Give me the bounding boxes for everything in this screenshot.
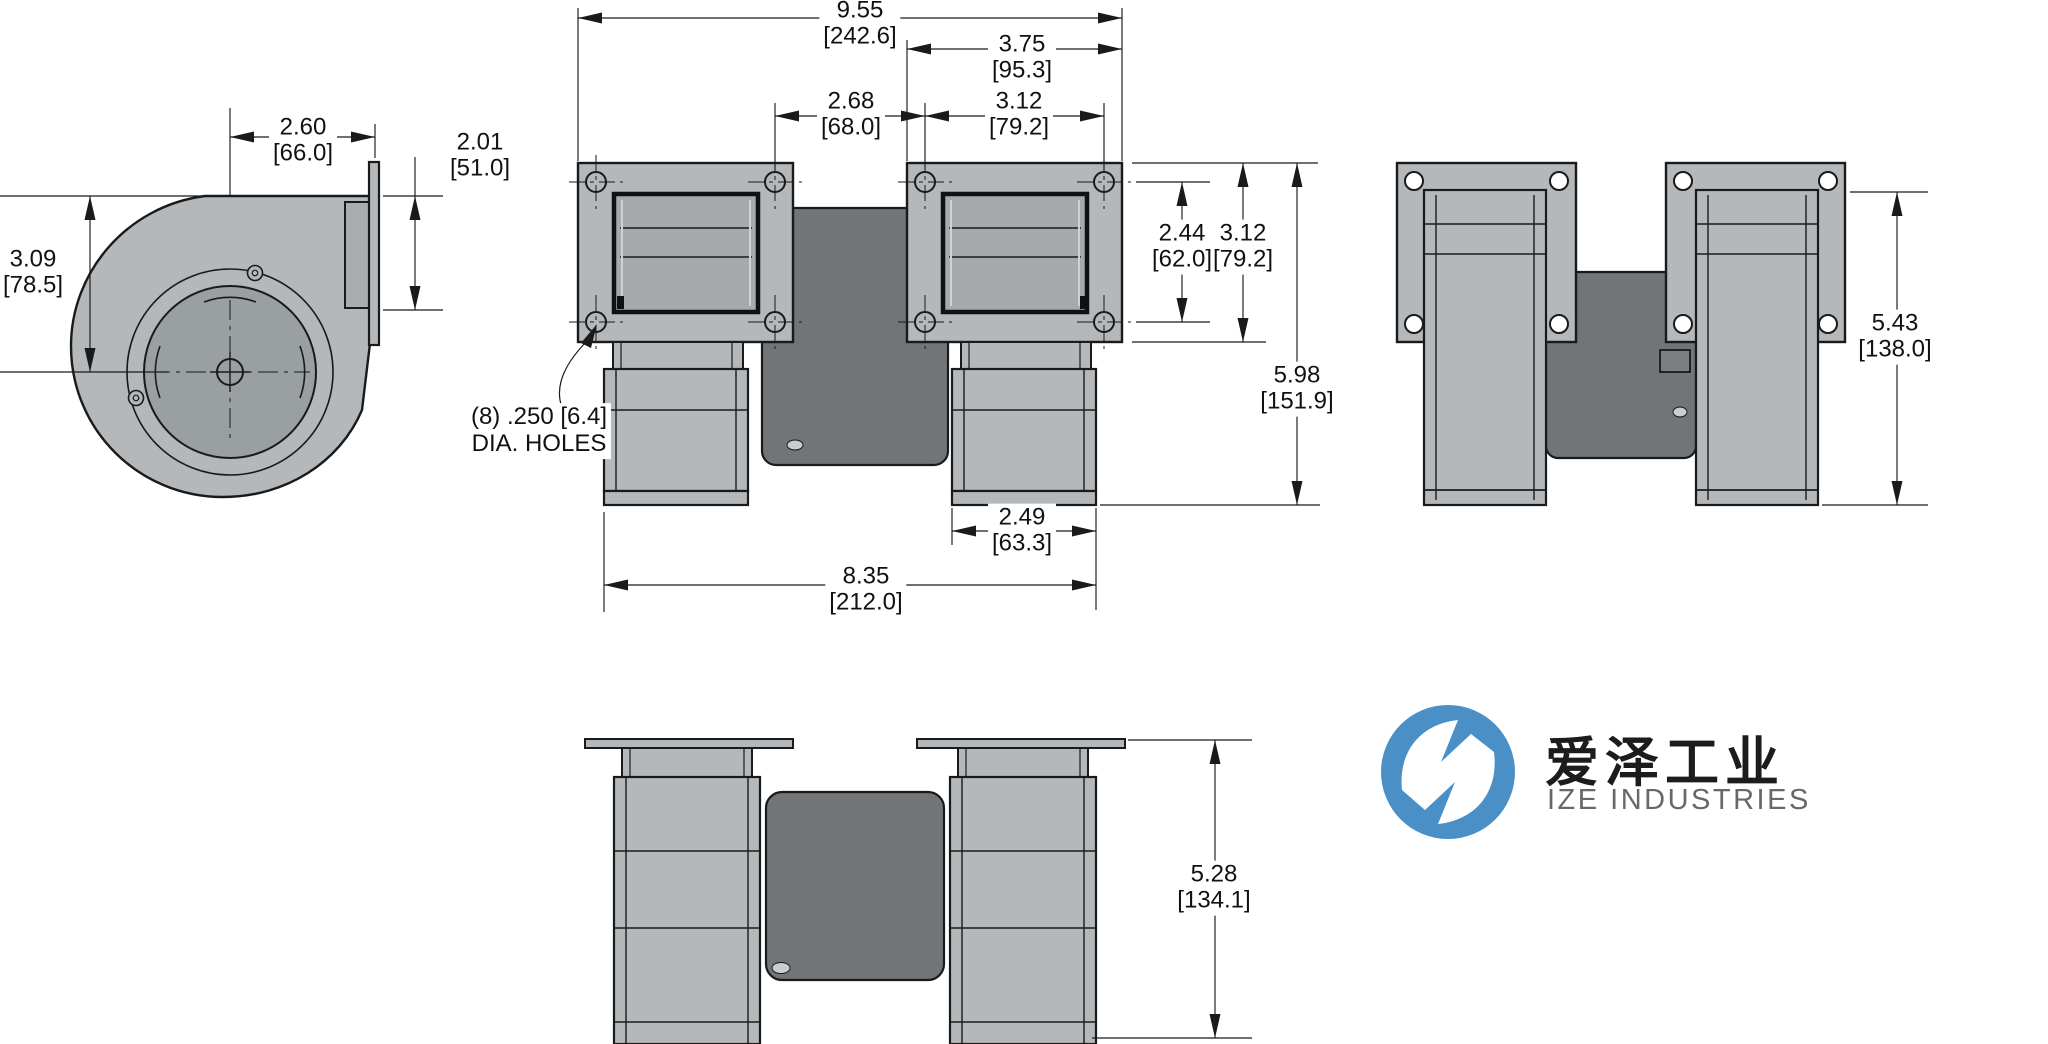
outlet-duct-edge bbox=[345, 202, 371, 308]
dim-hole-span-horizontal: 3.12[79.2] bbox=[985, 88, 1053, 143]
right-housing-column bbox=[952, 342, 1096, 505]
left-housing-column bbox=[604, 342, 748, 505]
outlet-flange-edge bbox=[369, 162, 379, 345]
dim-hole-span-vertical: 2.44[62.0] bbox=[1150, 220, 1214, 275]
motor-boss bbox=[1673, 407, 1687, 417]
ring-screw bbox=[129, 391, 144, 406]
right-outlet-opening bbox=[943, 194, 1087, 312]
motor-boss bbox=[772, 963, 790, 974]
left-outlet-opening bbox=[614, 194, 758, 312]
blower-dimension-drawing: 2.60[66.0] 2.01[51.0] 3.09[78.5] 9.55[24… bbox=[0, 0, 2048, 1044]
dim-scroll-width: 2.60[66.0] bbox=[269, 114, 337, 169]
right-housing-column bbox=[950, 748, 1096, 1044]
dim-hole-gap: 2.68[68.0] bbox=[817, 88, 885, 143]
dim-bottom-depth: 5.28[134.1] bbox=[1173, 861, 1254, 916]
right-flange-edge bbox=[917, 739, 1125, 748]
view-blower-side bbox=[71, 162, 379, 497]
company-logo: 爱泽工业 IZE INDUSTRIES bbox=[1380, 704, 1940, 854]
motor-boss bbox=[787, 440, 803, 450]
dim-flange-width: 3.75[95.3] bbox=[988, 31, 1056, 86]
view-bottom-dual bbox=[585, 739, 1125, 1044]
logo-mark-icon bbox=[1380, 704, 1516, 840]
left-housing-body bbox=[1424, 190, 1546, 505]
ring-screw bbox=[248, 266, 263, 281]
dim-flange-height: 3.12[79.2] bbox=[1211, 220, 1275, 275]
logo-english-name: IZE INDUSTRIES bbox=[1547, 784, 1811, 817]
motor-body bbox=[766, 792, 944, 980]
dim-overall-width: 9.55[242.6] bbox=[819, 0, 900, 51]
left-flange-edge bbox=[585, 739, 793, 748]
dim-base-width: 8.35[212.0] bbox=[825, 563, 906, 618]
dim-side-height: 5.43[138.0] bbox=[1854, 310, 1935, 365]
dim-housing-width: 2.49[63.3] bbox=[988, 504, 1056, 559]
dim-inlet-center: 3.09[78.5] bbox=[0, 246, 67, 301]
view-front-dual bbox=[569, 155, 1131, 505]
view-rear-dual bbox=[1397, 163, 1845, 505]
right-housing-body bbox=[1696, 190, 1818, 505]
left-housing-column bbox=[614, 748, 760, 1044]
conduit-box bbox=[1660, 350, 1690, 372]
holes-callout: (8) .250 [6.4]DIA. HOLES bbox=[467, 403, 611, 459]
dim-overall-height: 5.98[151.9] bbox=[1256, 362, 1337, 417]
dim-outlet-height: 2.01[51.0] bbox=[446, 129, 514, 184]
